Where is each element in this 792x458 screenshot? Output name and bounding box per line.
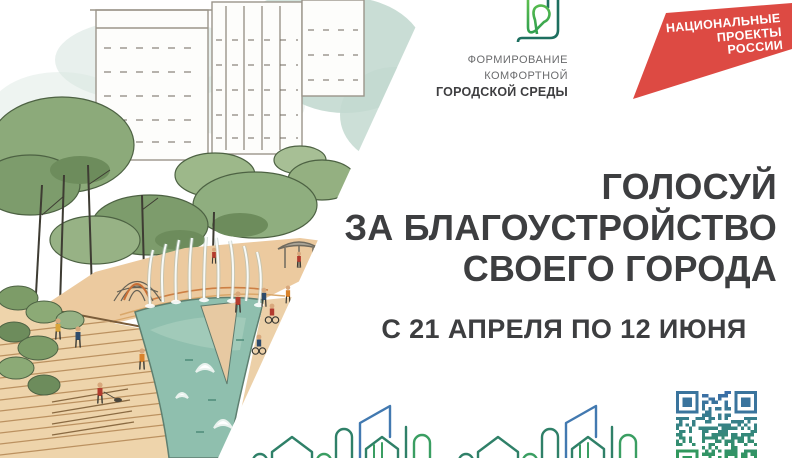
fkgs-logo-line3: ГОРОДСКОЙ СРЕДЫ	[398, 84, 568, 101]
poster: ФОРМИРОВАНИЕ КОМФОРТНОЙ ГОРОДСКОЙ СРЕДЫ …	[0, 0, 792, 458]
fkgs-logo-line2: КОМФОРТНОЙ	[398, 68, 568, 84]
qr-code-pattern	[676, 391, 757, 458]
city-skyline-outline	[252, 397, 672, 458]
fkgs-emblem-icon	[508, 0, 568, 47]
voting-dates: С 21 АПРЕЛЯ ПО 12 ИЮНЯ	[352, 314, 776, 345]
headline-line3: СВОЕГО ГОРОДА	[344, 248, 777, 289]
fkgs-logo-line1: ФОРМИРОВАНИЕ	[398, 52, 568, 68]
headline: ГОЛОСУЙ ЗА БЛАГОУСТРОЙСТВО СВОЕГО ГОРОДА	[344, 166, 777, 289]
national-projects-logo: НАЦИОНАЛЬНЫЕ ПРОЕКТЫ РОССИИ	[630, 0, 792, 102]
fkgs-logo: ФОРМИРОВАНИЕ КОМФОРТНОЙ ГОРОДСКОЙ СРЕДЫ	[398, 0, 568, 101]
qr-code	[676, 391, 757, 458]
headline-line2: ЗА БЛАГОУСТРОЙСТВО	[344, 207, 777, 248]
headline-line1: ГОЛОСУЙ	[344, 166, 777, 207]
